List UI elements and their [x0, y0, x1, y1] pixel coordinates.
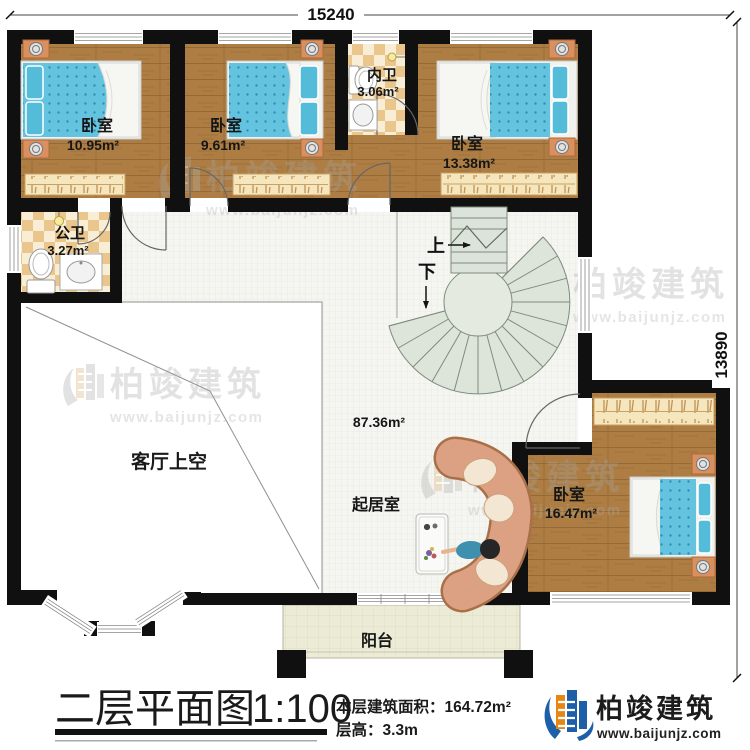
bedroom2-area: 9.61m²	[201, 137, 246, 153]
balcony-column-left	[277, 650, 306, 678]
coffee-table	[416, 514, 448, 574]
plan-title: 二层平面图	[55, 687, 255, 731]
void-label: 客厅上空	[131, 450, 207, 473]
floor-height-line: 层高：3.3m	[336, 720, 418, 739]
bed-bedroom3	[437, 61, 577, 139]
living-label: 起居室	[351, 495, 400, 514]
floor-plan-page: 柏竣建筑 www.baijunjz.com	[0, 0, 750, 750]
bedroom4-label: 卧室	[553, 485, 585, 504]
window-top-3	[352, 30, 399, 44]
bedroom1-label: 卧室	[81, 116, 113, 135]
window-bedroom4-south	[550, 592, 692, 605]
floor-area-line: 本层建筑面积：164.72m²	[336, 697, 511, 716]
stair-up-label: 上	[427, 236, 445, 256]
dimension-top: 15240	[307, 5, 354, 24]
dimension-right: 13890	[712, 331, 731, 378]
balcony-label: 阳台	[361, 631, 393, 650]
wardrobe-bedroom2	[233, 174, 330, 195]
window-top-2	[218, 30, 292, 44]
void-area	[21, 302, 322, 593]
title-underline	[55, 729, 327, 735]
balcony-column-right	[504, 650, 533, 678]
balcony-slider	[357, 593, 453, 605]
bedroom2-label: 卧室	[210, 116, 242, 135]
bedroom3-area: 13.38m²	[443, 155, 495, 171]
window-top-4	[450, 30, 533, 44]
wardrobe-bedroom3	[441, 173, 577, 195]
wardrobe-bedroom1	[25, 174, 125, 195]
bedroom3-label: 卧室	[451, 134, 483, 153]
living-area-value: 87.36m²	[353, 414, 405, 430]
brand-name: 柏竣建筑	[596, 693, 716, 724]
window-left	[7, 225, 21, 273]
stair-down-label: 下	[418, 262, 436, 282]
window-right	[578, 257, 592, 333]
sink	[349, 100, 377, 130]
wardrobe-bedroom4	[594, 398, 714, 425]
sink	[60, 254, 102, 290]
public-bath-area: 3.27m²	[47, 243, 89, 258]
bed-bedroom4	[630, 477, 715, 557]
brand-site: www.baijunjz.com	[596, 726, 722, 741]
inner-bath-label: 内卫	[367, 66, 397, 84]
window-top-1	[74, 30, 143, 44]
bedroom1-area: 10.95m²	[67, 137, 119, 153]
public-bath-label: 公卫	[55, 225, 85, 242]
inner-bath-area: 3.06m²	[357, 84, 399, 99]
floor-plan-canvas: 柏竣建筑 www.baijunjz.com	[0, 0, 750, 750]
bay-window-center	[97, 622, 142, 636]
bedroom4-area: 16.47m²	[545, 505, 597, 521]
